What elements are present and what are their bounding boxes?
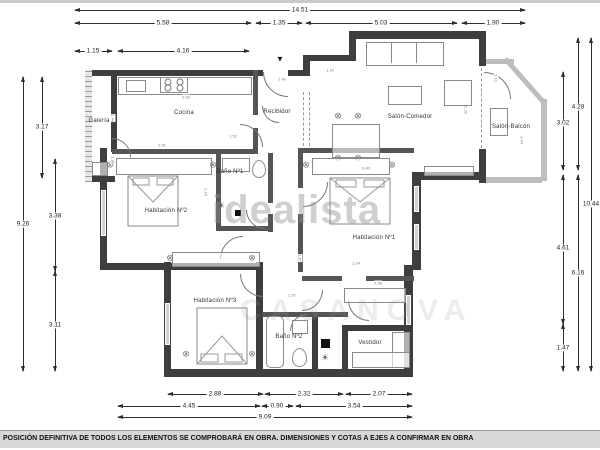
wardrobe	[116, 158, 212, 175]
interior-dim: 1.52	[229, 134, 237, 139]
wall-segment	[164, 369, 263, 377]
entrance-marker-icon: ▼	[276, 55, 284, 64]
balcony-planter	[424, 166, 474, 176]
closet-shelf	[352, 352, 410, 368]
room-label-hab3: Habitación Nº3	[194, 298, 237, 304]
interior-dim: 1.44	[520, 136, 525, 144]
dim-label: 5.03	[373, 20, 390, 27]
disclaimer-bar: POSICIÓN DEFINITIVA DE TODOS LOS ELEMENT…	[0, 430, 600, 448]
partition	[302, 276, 342, 281]
dim-label: 3.38	[47, 213, 64, 220]
window	[165, 303, 170, 345]
wardrobe-end-icon: ⊗	[166, 254, 174, 263]
dim-label: 4.28	[570, 104, 587, 111]
wardrobe	[312, 158, 390, 175]
watermark-idealista: idealista	[212, 188, 381, 233]
wardrobe	[172, 252, 260, 267]
balcony-glazing	[482, 177, 542, 183]
interior-dim: 1.10	[326, 68, 334, 73]
nightstand-icon: ⊗	[182, 350, 190, 359]
dim-label: 6.16	[570, 270, 587, 277]
wardrobe-end-icon: ⊗	[388, 161, 396, 170]
dim-label: 2.88	[207, 391, 224, 398]
water-heater	[321, 339, 330, 348]
stove	[160, 77, 188, 93]
interior-dim: 1.98	[111, 156, 116, 164]
disclaimer-text: POSICIÓN DEFINITIVA DE TODOS LOS ELEMENT…	[3, 435, 473, 442]
window	[101, 190, 106, 236]
window	[414, 186, 419, 212]
sofa-cushion-line	[391, 43, 392, 63]
room-label-salon-balcon: Salón-Balcón	[492, 124, 530, 130]
room-label-cocina: Cocina	[174, 110, 194, 116]
top-border-strip	[0, 0, 600, 3]
dim-label: 10.44	[581, 201, 600, 208]
partition	[253, 70, 258, 115]
interior-dim: 1.13	[494, 74, 499, 82]
interior-dim: 2.33	[464, 106, 469, 114]
floor-plan-page: ⊗ ⊗ ⊗ ⊗ ⊗ ⊗ ⊗ ⊗ ⊗ ⊗ ⊗ ⊗ ☀ ☀ ▼ Galería	[0, 0, 600, 450]
dim-label: 0.90	[269, 403, 286, 410]
wall-segment	[349, 31, 486, 39]
wall-segment	[342, 325, 348, 375]
interior-dim: 2.91	[158, 143, 166, 148]
dim-label: 4.61	[555, 245, 572, 252]
room-label-salon-comedor: Salón-Comedor	[388, 114, 433, 120]
nightstand-icon: ⊗	[248, 350, 256, 359]
dim-label: 9.26	[15, 221, 32, 228]
door-arc	[112, 138, 131, 157]
watermark-agency: CASANOVA	[240, 294, 473, 328]
dim-label: 3.54	[346, 403, 363, 410]
toilet	[292, 348, 307, 367]
wall-segment	[262, 369, 413, 377]
room-label-bano1: Baño Nº1	[216, 169, 243, 175]
interior-dim: 1.24	[352, 261, 360, 266]
gallery-glazed-wall	[85, 70, 92, 182]
wardrobe-end-icon: ⊗	[248, 254, 256, 263]
dim-label: 4.16	[175, 48, 192, 55]
room-label-bano2: Baño Nº2	[275, 334, 302, 340]
interior-dim: 1.40	[278, 77, 286, 82]
room-label-recibidor: Recibidor	[263, 109, 290, 115]
chair-icon: ⊗	[354, 112, 362, 121]
balcony-door-glazing-line	[481, 68, 482, 148]
room-label-vestidor: Vestidor	[358, 340, 381, 346]
room-label-hab1: Habitación Nº1	[353, 235, 396, 241]
dim-label: 3.02	[555, 120, 572, 127]
coffee-table	[388, 86, 422, 105]
open-passage-line	[309, 92, 310, 146]
dim-label: 3.17	[34, 124, 51, 131]
partition	[112, 149, 257, 154]
interior-dim: 3.40	[362, 166, 370, 171]
interior-dim: 3.53	[182, 95, 190, 100]
room-label-hab2: Habitación Nº2	[145, 208, 188, 214]
dim-label: 1.35	[271, 20, 288, 27]
tv-unit	[444, 80, 472, 106]
interior-dim: 1.44	[111, 114, 116, 122]
wardrobe-end-icon: ⊗	[302, 161, 310, 170]
interior-dim: 1.87	[298, 254, 303, 262]
dim-label: 14.51	[290, 7, 310, 14]
interior-dim: 2.15	[204, 188, 209, 196]
balcony-glazing	[541, 99, 547, 181]
dim-label: 3.11	[47, 322, 63, 329]
sofa	[366, 42, 444, 66]
dim-label: 2.32	[296, 391, 313, 398]
dim-label: 4.45	[181, 403, 198, 410]
bed	[125, 174, 181, 232]
door-arc	[240, 124, 263, 147]
window	[414, 224, 419, 250]
chair-icon: ⊗	[334, 112, 342, 121]
dim-label: 2.07	[371, 391, 388, 398]
room-label-galeria: Galería	[88, 118, 109, 124]
dim-label: 1.47	[555, 345, 572, 352]
dim-label: 9.09	[257, 414, 274, 421]
balcony-shelf	[490, 108, 508, 136]
wall-segment	[303, 55, 355, 61]
sofa-cushion-line	[416, 43, 417, 63]
toilet	[252, 160, 266, 178]
interior-dim: 2.96	[374, 281, 382, 286]
dim-label: 1.15	[85, 48, 102, 55]
wall-segment	[479, 31, 486, 66]
dim-label: 5.58	[155, 20, 172, 27]
radiator-icon: ☀	[321, 354, 329, 363]
kitchen-sink	[126, 80, 146, 92]
open-passage-line	[303, 92, 304, 146]
dim-label: 1.90	[485, 20, 502, 27]
